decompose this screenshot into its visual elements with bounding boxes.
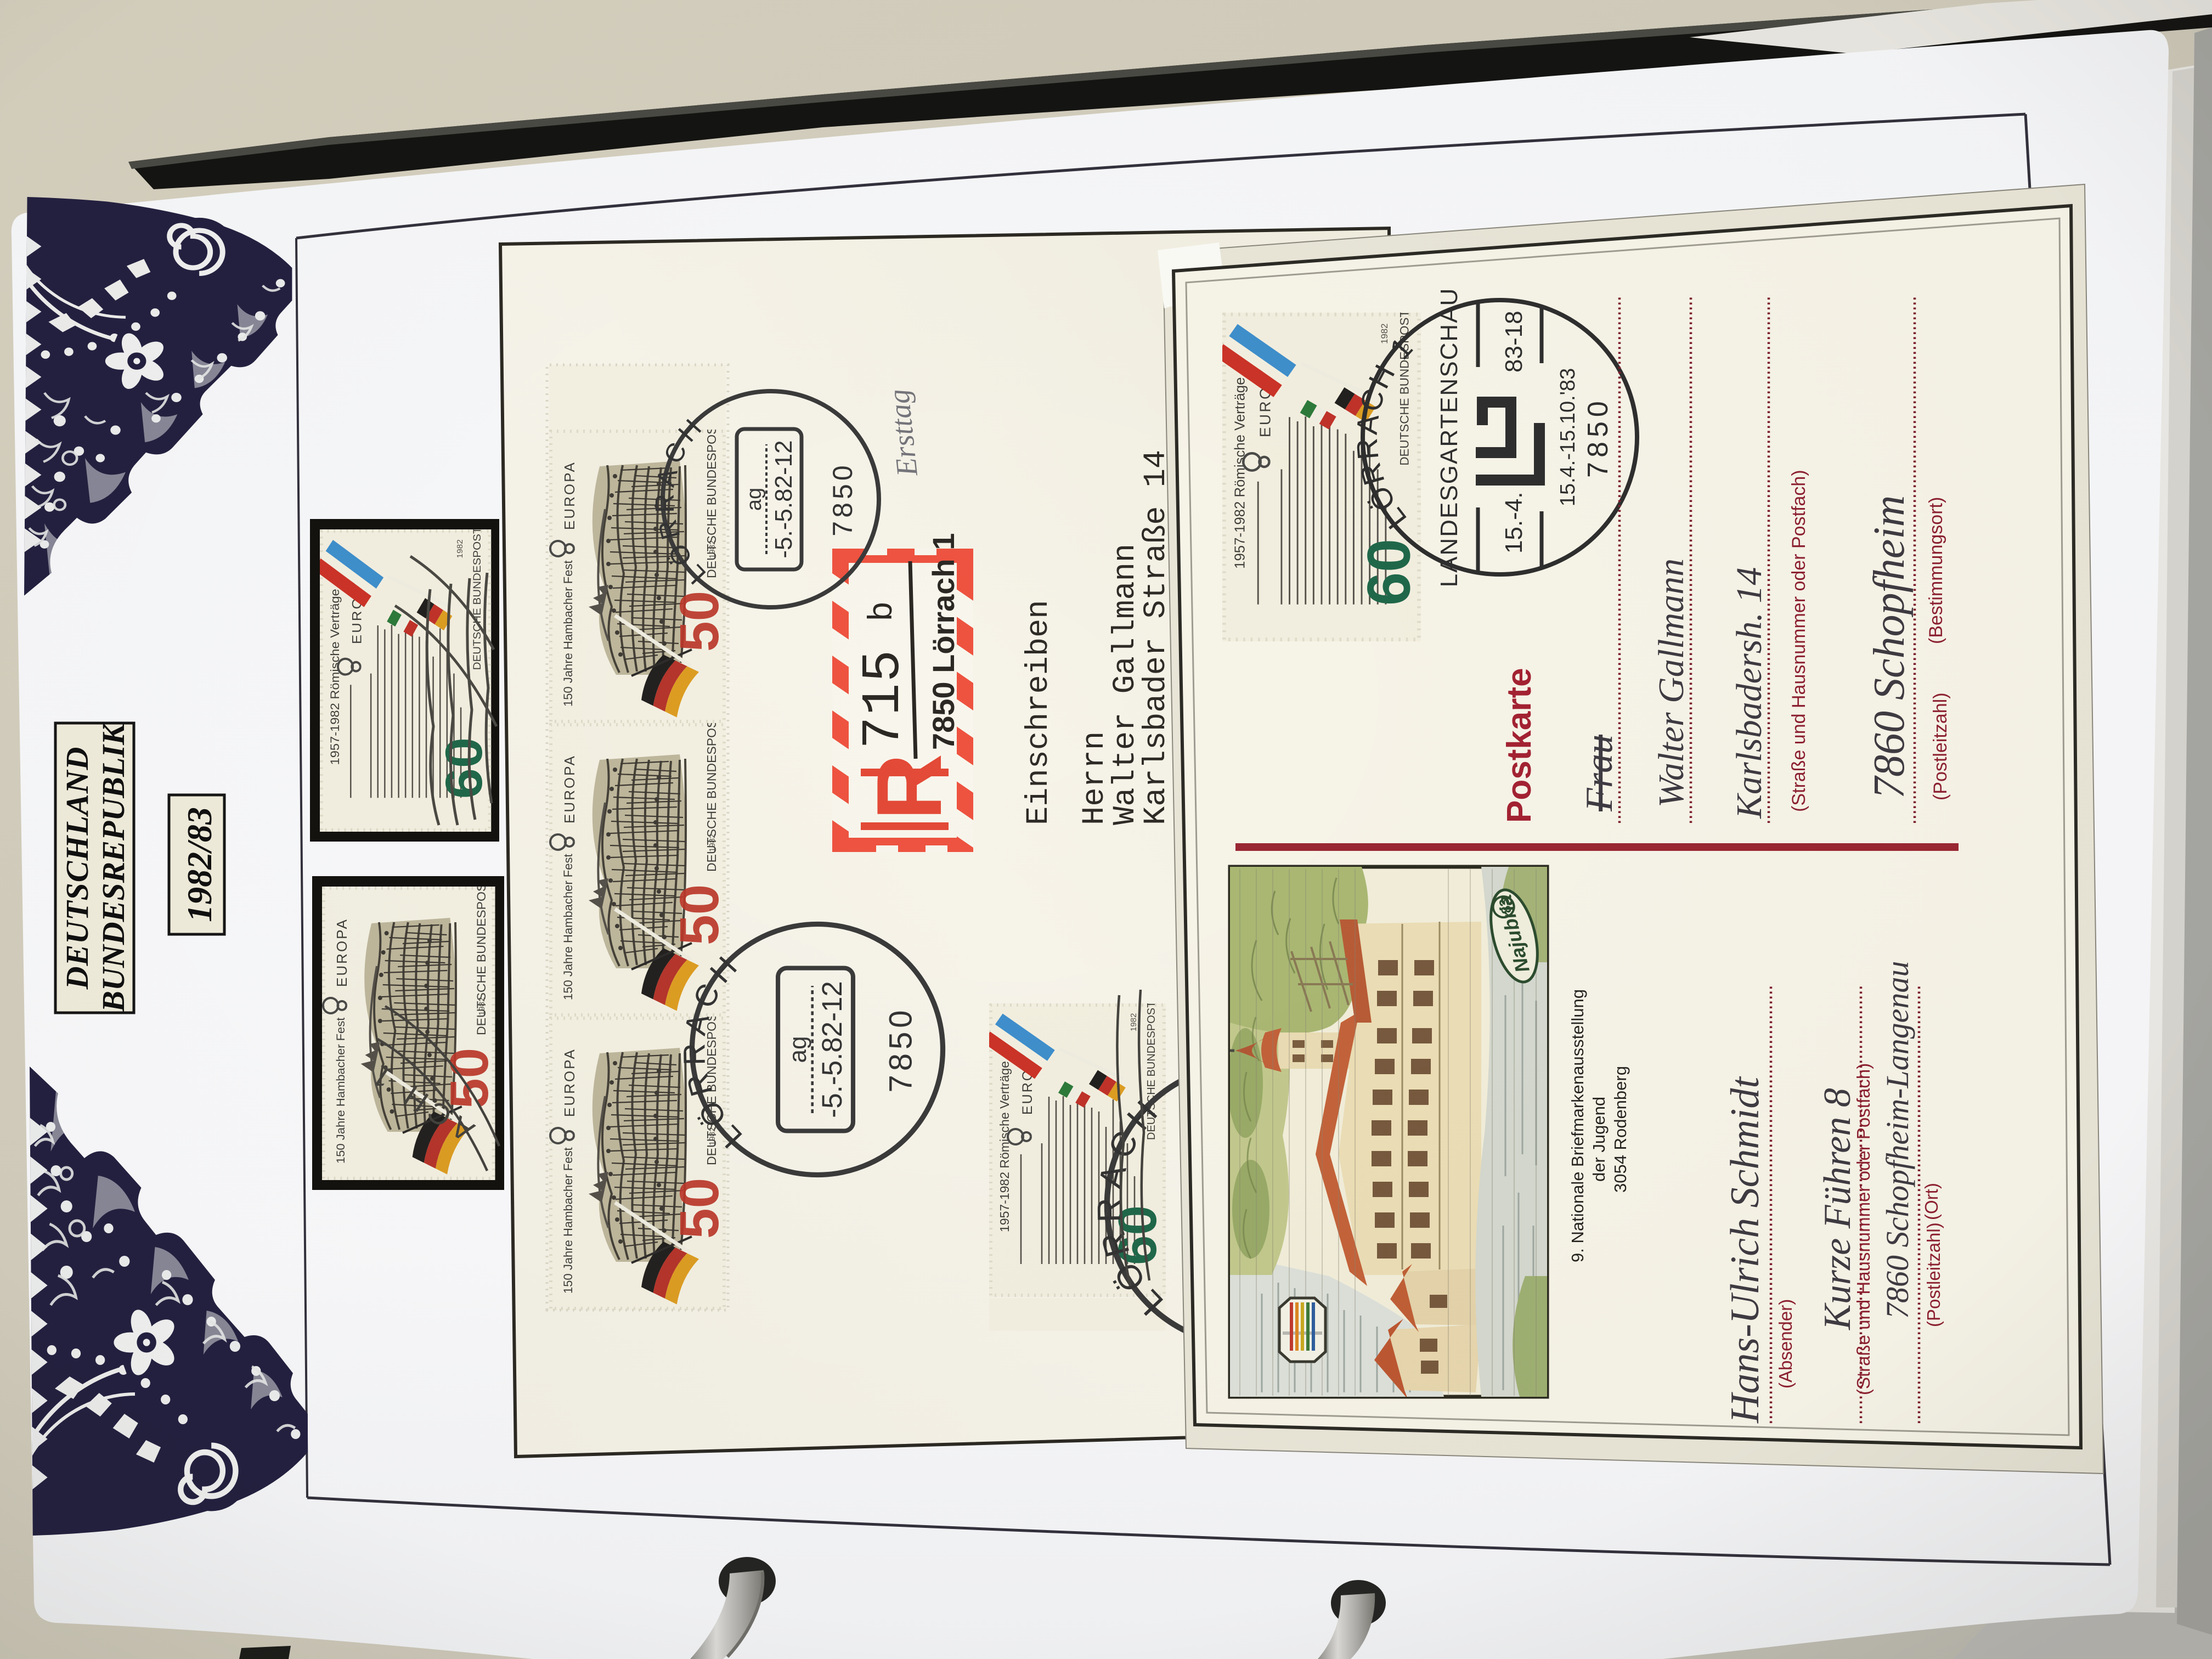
svg-text:(Bestimmungsort): (Bestimmungsort) bbox=[1926, 497, 1946, 644]
svg-text:7860 Schopfheim-Langenau: 7860 Schopfheim-Langenau bbox=[1880, 961, 1915, 1319]
svg-text:(Ort): (Ort) bbox=[1921, 1183, 1942, 1220]
svg-text:(Absender): (Absender) bbox=[1775, 1299, 1796, 1389]
svg-text:7860 Schopfheim: 7860 Schopfheim bbox=[1865, 495, 1914, 799]
svg-text:(Postleitzahl): (Postleitzahl) bbox=[1930, 692, 1951, 800]
svg-text:LANDESGARTENSCHAU: LANDESGARTENSCHAU bbox=[1436, 287, 1463, 588]
svg-text:9. Nationale Briefmarkenausste: 9. Nationale Briefmarkenausstellung bbox=[1568, 989, 1587, 1262]
svg-text:der Jugend: der Jugend bbox=[1589, 1097, 1609, 1182]
svg-text:Karlsbadersh. 14: Karlsbadersh. 14 bbox=[1729, 567, 1769, 819]
svg-text:Postkarte: Postkarte bbox=[1500, 668, 1538, 823]
svg-text:1982/83: 1982/83 bbox=[180, 807, 219, 922]
svg-text:Walter Gallmann: Walter Gallmann bbox=[1651, 558, 1691, 808]
svg-text:DEUTSCHLAND: DEUTSCHLAND bbox=[59, 747, 95, 990]
svg-text:Walter Gallmann: Walter Gallmann bbox=[1108, 544, 1143, 825]
svg-text:b: b bbox=[863, 601, 902, 622]
svg-text:715: 715 bbox=[854, 649, 915, 749]
svg-text:Herrn: Herrn bbox=[1077, 731, 1113, 825]
svg-text:(Straße und Hausnummer oder Po: (Straße und Hausnummer oder Postfach) bbox=[1788, 470, 1809, 812]
svg-text:83-18: 83-18 bbox=[1500, 311, 1527, 373]
svg-text:BUNDESREPUBLIK: BUNDESREPUBLIK bbox=[95, 722, 131, 1013]
svg-text:15.4.-15.10.'83: 15.4.-15.10.'83 bbox=[1556, 368, 1579, 506]
svg-text:(Straße und Hausnummer oder Po: (Straße und Hausnummer oder Postfach) bbox=[1853, 1063, 1874, 1395]
svg-text:Hans-Ulrich Schmidt: Hans-Ulrich Schmidt bbox=[1723, 1076, 1768, 1424]
svg-text:Einschreiben: Einschreiben bbox=[1022, 600, 1057, 825]
svg-text:(Postleitzahl): (Postleitzahl) bbox=[1923, 1222, 1944, 1327]
svg-text:3054 Rodenberg: 3054 Rodenberg bbox=[1611, 1066, 1630, 1193]
svg-text:7850: 7850 bbox=[1582, 397, 1614, 478]
svg-text:R: R bbox=[857, 754, 961, 820]
svg-text:7850 Lörrach 1: 7850 Lörrach 1 bbox=[926, 533, 961, 750]
svg-text:15.-4.: 15.-4. bbox=[1500, 492, 1527, 554]
svg-text:Frau: Frau bbox=[1578, 735, 1621, 812]
svg-text:Kurze Führen 8: Kurze Führen 8 bbox=[1816, 1088, 1859, 1330]
